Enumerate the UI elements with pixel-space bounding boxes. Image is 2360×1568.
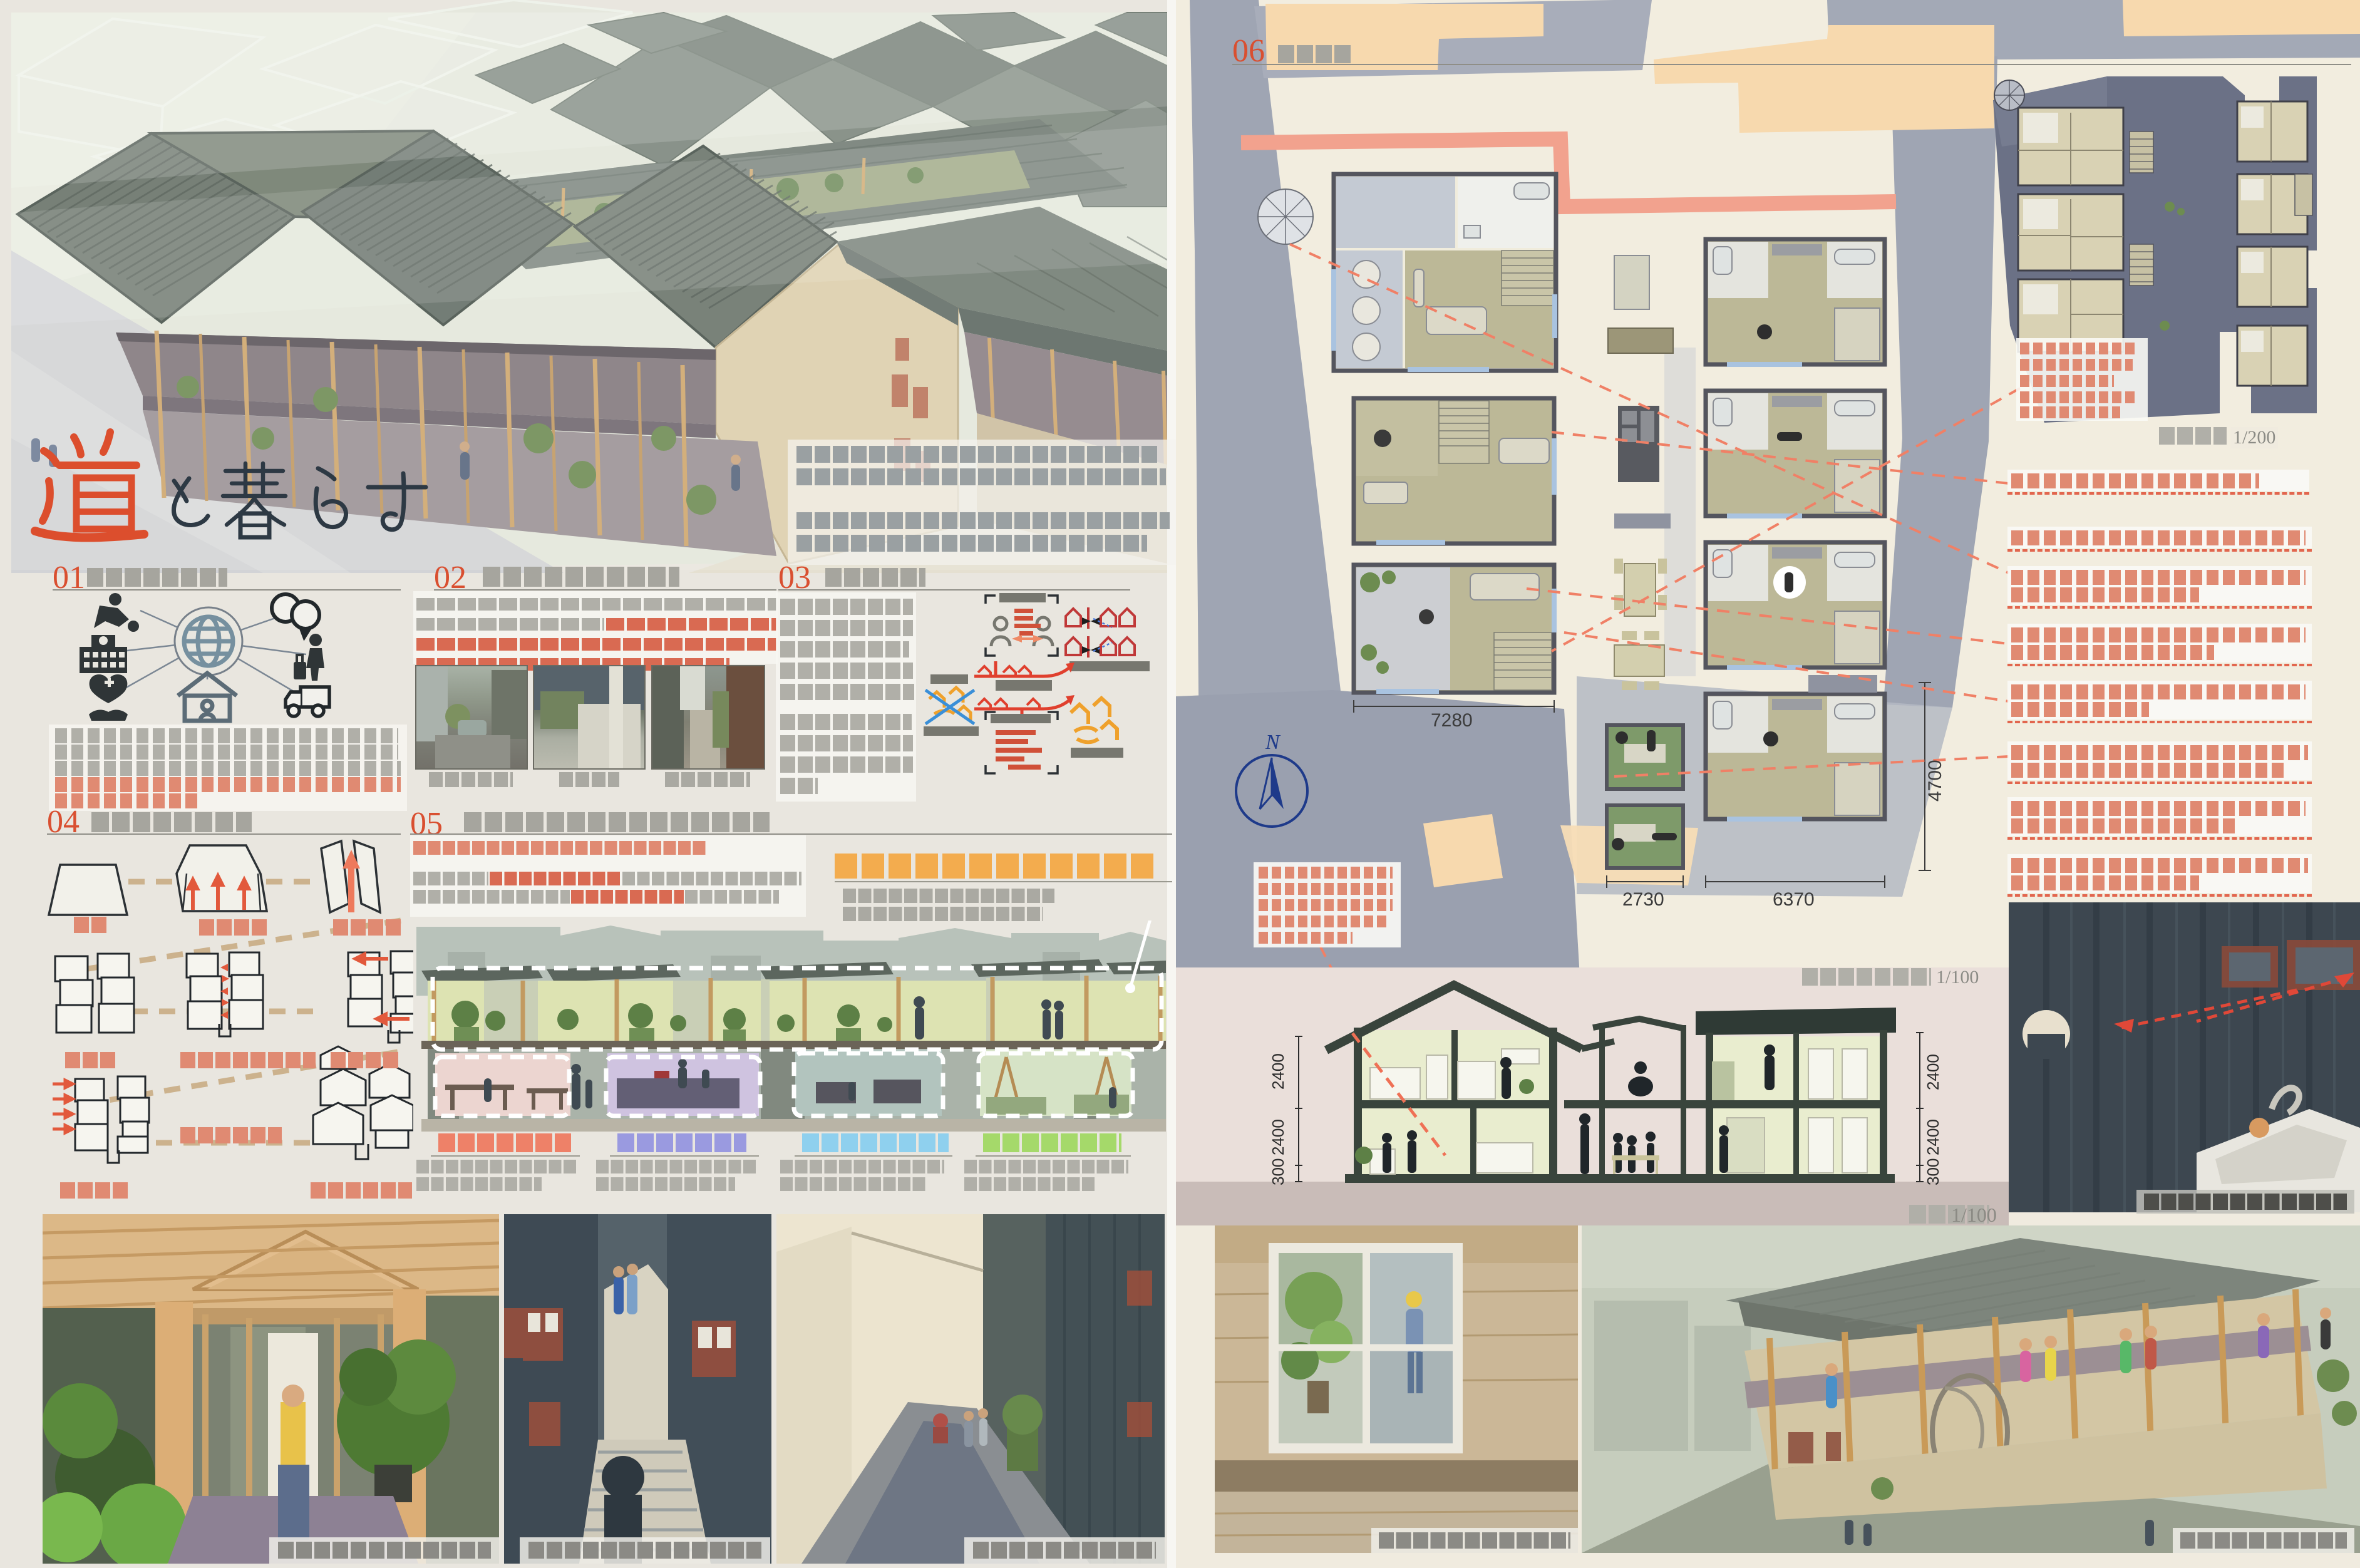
- svg-text:4700: 4700: [1925, 760, 1945, 802]
- svg-text:6370: 6370: [1773, 889, 1815, 910]
- svg-text:2730: 2730: [1622, 889, 1664, 910]
- svg-text:300: 300: [1924, 1158, 1942, 1185]
- svg-text:2400: 2400: [1924, 1119, 1942, 1155]
- svg-text:2400: 2400: [1269, 1119, 1287, 1155]
- svg-text:7280: 7280: [1431, 710, 1473, 731]
- svg-text:N: N: [1265, 731, 1281, 754]
- svg-text:2400: 2400: [1269, 1053, 1287, 1090]
- svg-text:300: 300: [1269, 1158, 1287, 1185]
- svg-text:2400: 2400: [1924, 1054, 1942, 1090]
